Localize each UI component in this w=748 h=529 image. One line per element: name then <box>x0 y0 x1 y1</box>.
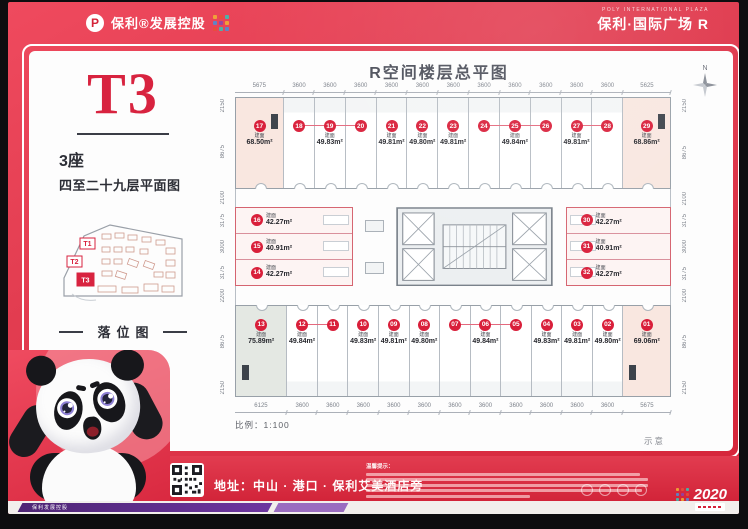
brand-left: P 保利®发展控股 <box>86 13 229 32</box>
map-t2-label: T2 <box>70 259 78 266</box>
unit-number-badge: 18 <box>293 120 305 132</box>
dimension-label: 3600 <box>314 81 345 94</box>
dimensions-left: 215086752100317530003175220086752150 <box>215 97 231 397</box>
unit-08: 08建面49.80m² <box>409 306 440 396</box>
unit-26: 26 <box>530 98 561 188</box>
unit-area: 42.27m² <box>596 271 622 279</box>
tower-title: T3 <box>45 65 201 123</box>
dimension-label: 3000 <box>677 234 693 260</box>
unit-area: 49.83m² <box>317 139 343 147</box>
dimension-label: 3600 <box>287 401 318 414</box>
brand-ribbon: 保利发展控股 <box>18 503 273 512</box>
dimension-label: 3600 <box>407 81 438 94</box>
schematic-note: 示意 <box>644 435 665 447</box>
unit-number-badge: 25 <box>509 120 521 132</box>
unit-number-badge: 08 <box>418 319 430 331</box>
unit-area: 49.84m² <box>289 338 315 346</box>
unit-15: 15建面40.91m² <box>236 233 352 259</box>
dimension-label: 3600 <box>530 81 561 94</box>
dimension-label: 3600 <box>562 401 593 414</box>
unit-number-badge: 04 <box>541 319 553 331</box>
unit-number-badge: 07 <box>449 319 461 331</box>
unit-20: 20 <box>345 98 376 188</box>
right-unit-stack: 30建面42.27m²31建面40.91m²32建面42.27m² <box>566 207 671 286</box>
panda-mouth <box>82 416 102 441</box>
poster-photo: P 保利®发展控股 POLY INTERNATIONAL PLAZA 保利·国际… <box>0 0 748 529</box>
unit-area: 49.84m² <box>502 139 528 147</box>
dimension-label: 3600 <box>469 81 500 94</box>
left-panel: T3 3座 四至二十九层平面图 T1 <box>45 65 201 341</box>
panda-ear <box>109 350 145 382</box>
unit-area: 68.86m² <box>634 139 660 147</box>
unit-31: 31建面40.91m² <box>567 233 670 259</box>
structural-column <box>242 365 249 380</box>
unit-number-badge: 17 <box>254 120 266 132</box>
unit-number-badge: 11 <box>327 319 339 331</box>
floors-subtitle: 四至二十九层平面图 <box>59 175 201 194</box>
dimension-label: 3175 <box>215 207 231 234</box>
panda-mascot <box>14 357 164 503</box>
unit-area: 49.83m² <box>534 338 560 346</box>
brand-left-label: 保利®发展控股 <box>111 13 206 32</box>
structural-column <box>658 114 665 129</box>
unit-area: 49.80m² <box>409 139 435 147</box>
ribbon-label: 保利发展控股 <box>32 504 68 511</box>
dimension-label: 8675 <box>215 305 231 379</box>
dimension-label: 3600 <box>501 401 532 414</box>
dimension-label: 3175 <box>677 207 693 234</box>
disclaimer-line <box>366 495 530 498</box>
unit-number-badge: 15 <box>251 241 263 253</box>
unit-24: 24 <box>468 98 499 188</box>
left-unit-stack: 16建面42.27m²15建面40.91m²14建面42.27m² <box>235 207 353 286</box>
unit-number-badge: 10 <box>357 319 369 331</box>
brand-right: POLY INTERNATIONAL PLAZA 保利·国际广场 R <box>597 7 709 34</box>
panda-ear <box>25 354 58 387</box>
dimension-label: 3600 <box>284 81 315 94</box>
unit-number-badge: 02 <box>602 319 614 331</box>
unit-area: 40.91m² <box>266 245 292 253</box>
unit-number-badge: 21 <box>386 120 398 132</box>
unit-number-badge: 31 <box>581 241 593 253</box>
unit-number-badge: 30 <box>581 214 593 226</box>
elevator-core <box>396 207 553 286</box>
scale-label: 比例：1:100 <box>235 419 290 431</box>
structural-column <box>271 114 278 129</box>
dimensions-bottom: 6125360036003600360036003600360036003600… <box>235 401 671 414</box>
block-label: 3座 <box>59 147 201 171</box>
year-sublabel <box>695 503 725 511</box>
unit-area: 42.27m² <box>596 219 622 227</box>
map-caption-label: 落位图 <box>97 322 154 341</box>
unit-13: 13建面75.89m² <box>236 306 286 396</box>
unit-number-badge: 03 <box>571 319 583 331</box>
corridor <box>235 189 671 207</box>
dimension-label: 2150 <box>677 97 693 115</box>
dimension-label: 5675 <box>623 401 671 414</box>
dimension-label: 3600 <box>438 81 469 94</box>
floor-plan-area: R空间楼层总平图 N 56753600360036003600360036003… <box>205 51 729 451</box>
unit-number-badge: 29 <box>641 120 653 132</box>
certification-badges <box>581 484 647 496</box>
unit-30: 30建面42.27m² <box>567 208 670 233</box>
corridor-gap <box>553 207 566 286</box>
header: P 保利®发展控股 POLY INTERNATIONAL PLAZA 保利·国际… <box>8 2 739 44</box>
unit-area: 42.27m² <box>266 219 292 227</box>
unit-area: 75.89m² <box>248 338 274 346</box>
unit-area: 49.80m² <box>595 338 621 346</box>
dimension-label: 3600 <box>379 401 410 414</box>
unit-number-badge: 16 <box>251 214 263 226</box>
dimension-label: 5675 <box>235 81 284 94</box>
caption-line <box>59 331 83 333</box>
unit-14: 14建面42.27m² <box>236 259 352 285</box>
bottom-unit-row: 13建面75.89m²12建面49.84m²1110建面49.83m²09建面4… <box>235 305 671 397</box>
unit-area: 49.80m² <box>411 338 437 346</box>
divider <box>77 133 169 135</box>
unit-01: 01建面69.06m² <box>622 306 670 396</box>
shaft <box>365 220 384 232</box>
unit-19: 19建面49.83m² <box>314 98 345 188</box>
unit-area: 42.27m² <box>266 271 292 279</box>
disclaimer-title: 温馨提示： <box>366 462 648 470</box>
unit-29: 29建面68.86m² <box>622 98 670 188</box>
dimension-label: 3600 <box>531 401 562 414</box>
unit-area: 40.91m² <box>596 245 622 253</box>
unit-07: 07 <box>439 306 470 396</box>
top-unit-row: 17建面68.50m²1819建面49.83m²2021建面49.81m²22建… <box>235 97 671 189</box>
unit-area: 49.81m² <box>564 139 590 147</box>
unit-05: 05 <box>500 306 531 396</box>
dimension-label: 2150 <box>677 379 693 397</box>
dimension-label: 3600 <box>409 401 440 414</box>
unit-area: 49.81m² <box>564 338 590 346</box>
dimension-label: 2100 <box>677 287 693 305</box>
unit-27: 27建面49.81m² <box>561 98 592 188</box>
year-label: 2020 <box>694 488 727 502</box>
dimension-label: 3600 <box>345 81 376 94</box>
dimension-label: 3600 <box>470 401 501 414</box>
structural-column <box>629 365 636 380</box>
dimension-label: 3600 <box>592 401 623 414</box>
shaft <box>365 262 384 274</box>
dimension-label: 3600 <box>440 401 471 414</box>
unit-number-badge: 14 <box>251 267 263 279</box>
dimension-label: 3175 <box>677 260 693 287</box>
dots-logo-icon <box>676 488 689 501</box>
unit-18: 18 <box>283 98 314 188</box>
dimension-label: 8675 <box>677 115 693 189</box>
unit-area: 49.81m² <box>381 338 407 346</box>
caption-line <box>163 331 187 333</box>
bottom-strip: 保利发展控股 <box>8 501 739 514</box>
unit-number-badge: 32 <box>581 267 593 279</box>
map-caption: 落位图 <box>45 322 201 341</box>
unit-number-badge: 26 <box>540 120 552 132</box>
unit-number-badge: 12 <box>296 319 308 331</box>
unit-02: 02建面49.80m² <box>592 306 623 396</box>
compass: N <box>691 65 719 103</box>
unit-number-badge: 24 <box>478 120 490 132</box>
floor-plan: 17建面68.50m²1819建面49.83m²2021建面49.81m²22建… <box>235 97 671 397</box>
unit-area: 69.06m² <box>634 338 660 346</box>
unit-11: 11 <box>317 306 348 396</box>
unit-area: 49.81m² <box>378 139 404 147</box>
unit-number-badge: 09 <box>388 319 400 331</box>
dimension-label: 5625 <box>623 81 671 94</box>
corridor <box>235 286 671 305</box>
unit-28: 28 <box>591 98 622 188</box>
dimension-label: 3600 <box>500 81 531 94</box>
north-arrow-icon <box>692 72 718 98</box>
core-detail <box>396 207 553 286</box>
dimension-label: 8675 <box>215 115 231 189</box>
dimension-label: 3600 <box>348 401 379 414</box>
unit-21: 21建面49.81m² <box>376 98 407 188</box>
poster: P 保利®发展控股 POLY INTERNATIONAL PLAZA 保利·国际… <box>8 2 739 514</box>
dimensions-top: 5675360036003600360036003600360036003600… <box>235 81 671 94</box>
dimension-label: 2100 <box>677 189 693 207</box>
unit-area: 49.84m² <box>472 338 498 346</box>
unit-number-badge: 20 <box>355 120 367 132</box>
dimension-label: 3600 <box>561 81 592 94</box>
poly-logo-icon: P <box>86 14 104 32</box>
panda-head <box>31 354 144 458</box>
unit-06: 06建面49.84m² <box>470 306 501 396</box>
unit-32: 32建面42.27m² <box>567 259 670 285</box>
unit-23: 23建面49.81m² <box>437 98 468 188</box>
unit-03: 03建面49.81m² <box>561 306 592 396</box>
unit-number-badge: 06 <box>479 319 491 331</box>
dimension-label: 3600 <box>317 401 348 414</box>
unit-22: 22建面49.80m² <box>406 98 437 188</box>
dimension-label: 2150 <box>215 97 231 115</box>
dimensions-right: 215086752100317530003175210086752150 <box>677 97 693 397</box>
dimension-label: 3175 <box>215 259 231 286</box>
mascot-panel <box>8 350 170 503</box>
dimension-label: 3000 <box>215 234 231 260</box>
dimension-label: 2200 <box>215 286 231 305</box>
unit-12: 12建面49.84m² <box>286 306 317 396</box>
unit-number-badge: 13 <box>255 319 267 331</box>
year-2020-logo: 2020 <box>676 488 727 511</box>
brand-right-label: 保利·国际广场 R <box>597 14 709 34</box>
unit-16: 16建面42.27m² <box>236 208 352 233</box>
dimension-label: 6125 <box>235 401 287 414</box>
dimension-label: 2150 <box>215 379 231 397</box>
brand-right-caption: POLY INTERNATIONAL PLAZA <box>597 7 709 13</box>
panda-brow <box>76 385 87 392</box>
dimension-label: 3600 <box>592 81 623 94</box>
unit-number-badge: 19 <box>324 120 336 132</box>
qr-code <box>170 463 204 497</box>
dots-logo-icon <box>213 15 229 31</box>
unit-number-badge: 22 <box>416 120 428 132</box>
north-label: N <box>691 65 719 72</box>
unit-25: 25建面49.84m² <box>499 98 530 188</box>
unit-09: 09建面49.81m² <box>378 306 409 396</box>
lobby-gap <box>353 207 397 286</box>
unit-10: 10建面49.83m² <box>347 306 378 396</box>
unit-number-badge: 05 <box>510 319 522 331</box>
unit-number-badge: 23 <box>447 120 459 132</box>
site-location-map: T1 T2 T3 <box>58 216 188 314</box>
dimension-label: 8675 <box>677 305 693 379</box>
disclaimer-line <box>366 473 640 476</box>
unit-number-badge: 01 <box>641 319 653 331</box>
dimension-label: 2100 <box>215 189 231 207</box>
unit-area: 49.81m² <box>440 139 466 147</box>
middle-band: 16建面42.27m²15建面40.91m²14建面42.27m² <box>235 207 671 286</box>
unit-area: 49.83m² <box>350 338 376 346</box>
disclaimer-line <box>366 478 648 481</box>
brand-ribbon-accent <box>274 503 349 512</box>
dimension-label: 3600 <box>376 81 407 94</box>
plan-title: R空间楼层总平图 <box>205 59 673 83</box>
unit-17: 17建面68.50m² <box>236 98 283 188</box>
unit-number-badge: 27 <box>571 120 583 132</box>
unit-area: 68.50m² <box>246 139 272 147</box>
map-t3-label: T3 <box>81 278 89 285</box>
unit-number-badge: 28 <box>601 120 613 132</box>
map-t1-label: T1 <box>83 241 91 248</box>
unit-04: 04建面49.83m² <box>531 306 562 396</box>
